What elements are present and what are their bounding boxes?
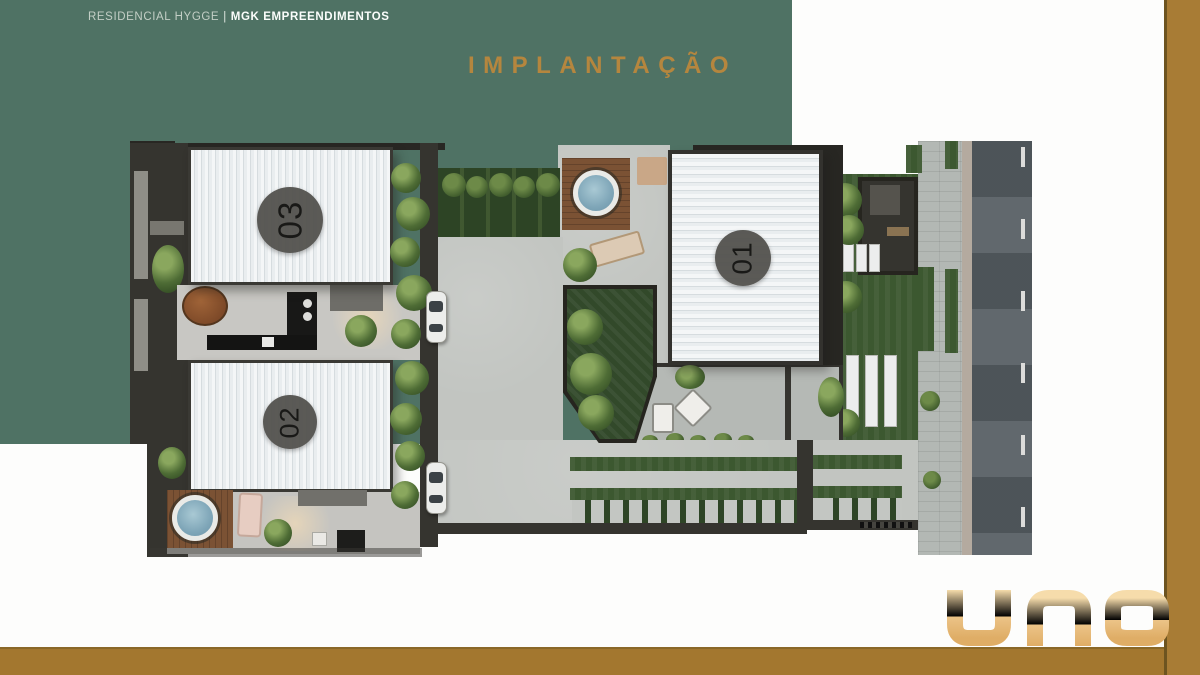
warm-light-glow <box>887 227 909 236</box>
driveway-grass-strip <box>813 455 902 469</box>
hedge-tree <box>536 173 560 197</box>
plant <box>391 319 421 349</box>
header-separator: | <box>219 11 231 23</box>
parked-car <box>426 291 447 343</box>
header-bar: RESIDENCIAL HYGGE|MGK EMPREENDIMENTOS <box>88 11 390 23</box>
garden-wall-inset <box>870 185 900 215</box>
lot-divider-wall <box>797 440 813 530</box>
plant <box>396 197 430 231</box>
unit-01-side-wall <box>823 150 843 365</box>
unit-01-hot-tub <box>573 170 619 216</box>
hedge-tree <box>513 176 535 198</box>
project-name: RESIDENCIAL HYGGE <box>88 11 219 23</box>
plant <box>390 403 422 435</box>
street-curb <box>962 141 972 555</box>
plant <box>264 519 292 547</box>
plant <box>345 315 377 347</box>
boundary-wall-bottom <box>433 523 807 534</box>
garden-paver-slab <box>884 355 897 427</box>
plant <box>395 361 429 395</box>
plant <box>567 309 603 345</box>
plant <box>390 237 420 267</box>
unit-03-number: 03 <box>271 201 309 240</box>
side-table <box>312 532 327 546</box>
unit-01-badge: 01 <box>715 230 771 286</box>
letter-n <box>1035 598 1083 646</box>
frame-border-right <box>1164 0 1200 675</box>
wall-opening <box>134 299 148 371</box>
sidewalk-grass-strip <box>945 141 958 169</box>
plant <box>391 163 421 193</box>
stool <box>303 312 312 321</box>
kitchen-counter <box>330 285 383 311</box>
plant <box>570 353 612 395</box>
outdoor-armchair <box>652 403 674 433</box>
patio-divider-wall <box>785 363 791 445</box>
driveway-grass-strip <box>570 488 797 500</box>
permeable-paver-row <box>820 498 902 520</box>
permeable-paver-row <box>572 500 807 523</box>
sidewalk-grass-strip <box>945 269 958 353</box>
garden-planter <box>843 244 854 272</box>
plant <box>923 471 941 489</box>
plant <box>675 365 705 389</box>
unit-03-badge: 03 <box>257 187 323 253</box>
plant <box>391 481 419 509</box>
plant <box>578 395 614 431</box>
plant <box>158 447 186 479</box>
plant <box>563 248 597 282</box>
hedge-tree <box>466 176 488 198</box>
sidewalk-grass-strip <box>906 145 922 173</box>
letter-u <box>955 590 1003 638</box>
road-lane-marking <box>1021 147 1025 549</box>
hedge-tree <box>442 173 466 197</box>
plant <box>920 391 940 411</box>
garden-planter <box>856 244 867 272</box>
una-logo: una <box>945 586 1170 661</box>
hedge-tree <box>489 173 513 197</box>
stool <box>303 299 312 308</box>
plant <box>818 377 844 417</box>
deck-lounger <box>237 492 263 537</box>
dining-table <box>182 286 228 326</box>
page-title: IMPLANTAÇÃO <box>468 52 737 80</box>
wall-ledge <box>150 221 184 235</box>
kitchen-appliance <box>262 337 274 347</box>
outdoor-sofa <box>298 490 367 506</box>
courtyard-path <box>438 237 563 443</box>
drainage-grate <box>860 522 912 528</box>
garden-paver-slab <box>865 355 878 427</box>
kitchen-island <box>287 292 317 340</box>
site-plan-render: 01 <box>130 141 1032 570</box>
driveway-grass-strip <box>813 486 902 498</box>
company-name: MGK EMPREENDIMENTOS <box>231 11 390 23</box>
wall-opening <box>134 171 148 279</box>
outdoor-bench <box>637 157 667 185</box>
unit-02-hot-tub <box>172 495 218 541</box>
presentation-slide: RESIDENCIAL HYGGE|MGK EMPREENDIMENTOS IM… <box>0 0 1200 675</box>
unit-02-badge: 02 <box>263 395 317 449</box>
unit-01-number: 01 <box>727 241 759 274</box>
una-logo-graphic <box>945 586 1170 656</box>
garden-planter <box>869 244 880 272</box>
parked-car <box>426 462 447 514</box>
building-shadow <box>150 548 422 557</box>
plant <box>395 441 425 471</box>
driveway-grass-strip <box>570 457 797 471</box>
unit-02-number: 02 <box>274 406 305 438</box>
